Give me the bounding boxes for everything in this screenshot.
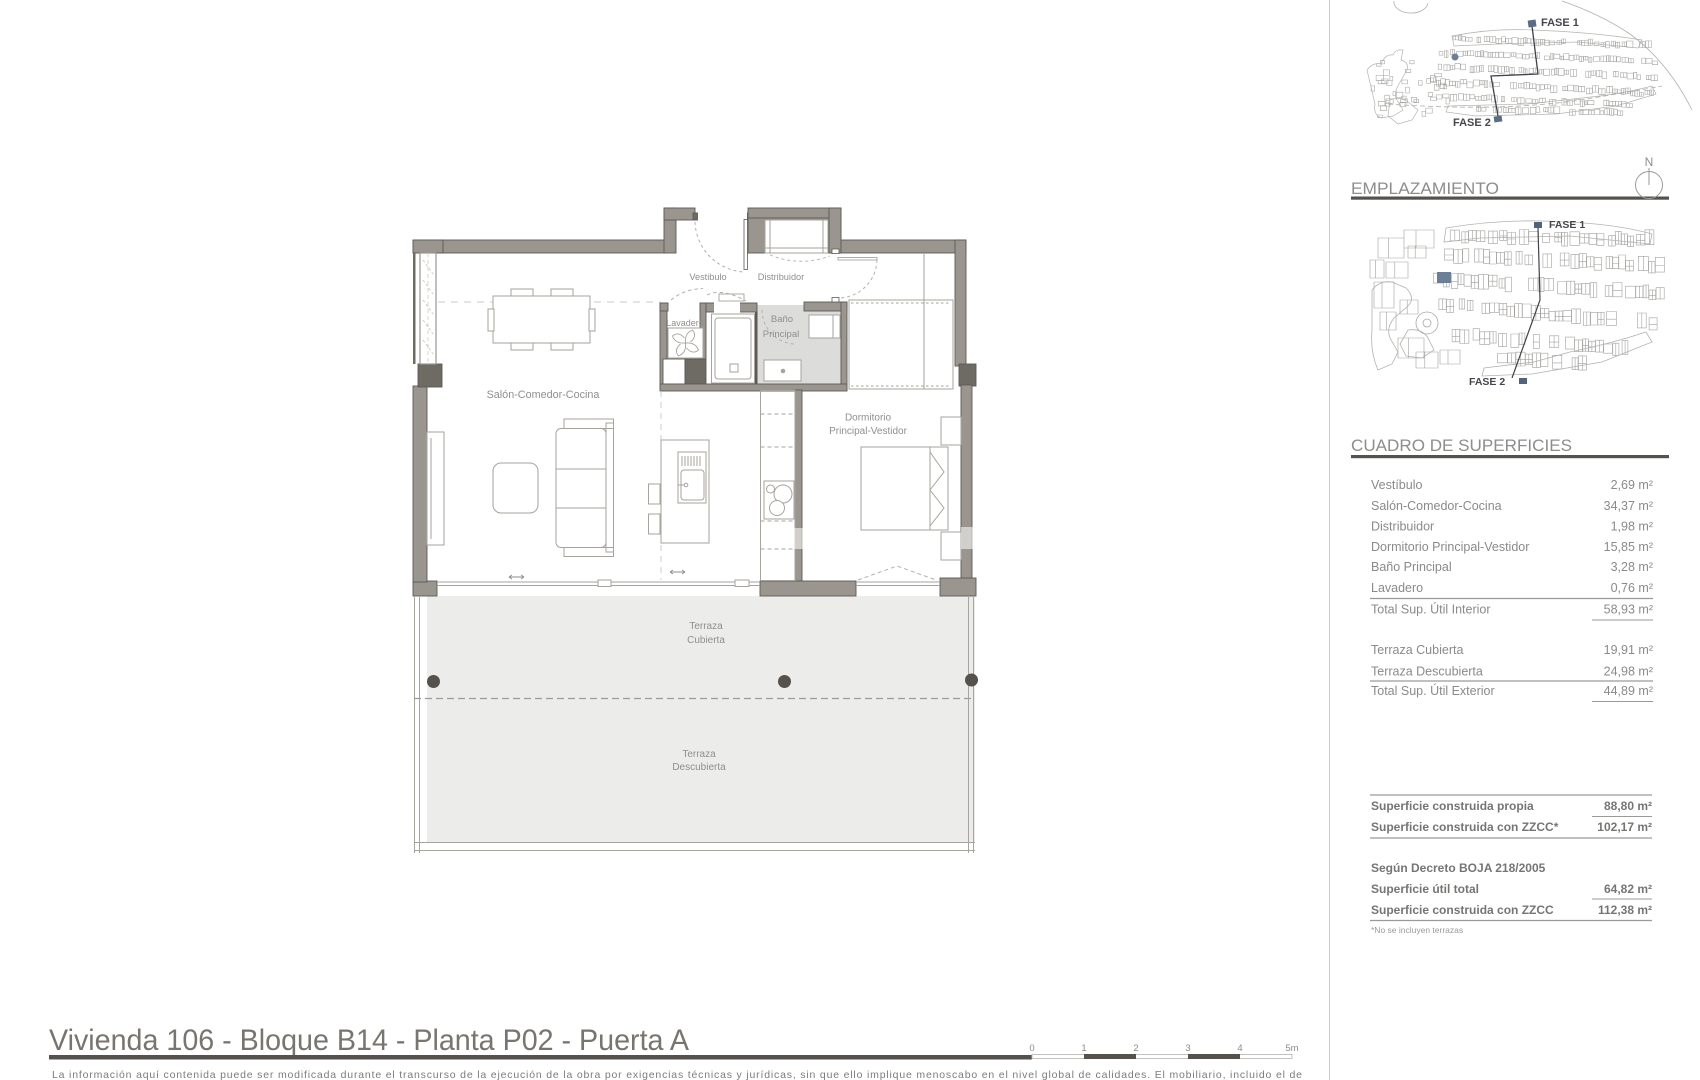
svg-text:FASE 2: FASE 2	[1453, 117, 1491, 129]
svg-text:19,91 m²: 19,91 m²	[1604, 643, 1653, 657]
svg-text:Terraza Cubierta: Terraza Cubierta	[1371, 643, 1463, 657]
svg-text:*No se incluyen terrazas: *No se incluyen terrazas	[1371, 925, 1463, 935]
svg-text:CUADRO DE SUPERFICIES: CUADRO DE SUPERFICIES	[1351, 437, 1572, 455]
svg-text:Terraza: Terraza	[682, 749, 716, 760]
svg-text:Distribuidor: Distribuidor	[1371, 520, 1434, 534]
svg-text:Total Sup. Útil Exterior: Total Sup. Útil Exterior	[1371, 683, 1495, 698]
svg-text:0,76 m²: 0,76 m²	[1611, 581, 1653, 595]
svg-text:Lavadero: Lavadero	[1371, 581, 1423, 595]
svg-text:64,82 m²: 64,82 m²	[1604, 882, 1652, 896]
svg-text:1: 1	[1081, 1043, 1086, 1054]
svg-text:Superficie útil total: Superficie útil total	[1371, 882, 1479, 896]
svg-text:3: 3	[1185, 1043, 1190, 1054]
svg-text:3,28 m²: 3,28 m²	[1611, 560, 1653, 574]
svg-text:44,89 m²: 44,89 m²	[1604, 684, 1653, 698]
svg-text:Superficie construida con ZZCC: Superficie construida con ZZCC*	[1371, 820, 1559, 834]
svg-text:Dormitorio: Dormitorio	[845, 413, 892, 424]
svg-text:Dormitorio Principal-Vestidor: Dormitorio Principal-Vestidor	[1371, 540, 1529, 554]
svg-text:112,38 m²: 112,38 m²	[1598, 903, 1652, 917]
svg-text:58,93 m²: 58,93 m²	[1604, 603, 1653, 617]
svg-text:2,69 m²: 2,69 m²	[1611, 478, 1653, 492]
svg-text:FASE 1: FASE 1	[1541, 17, 1579, 29]
svg-text:EMPLAZAMIENTO: EMPLAZAMIENTO	[1351, 180, 1499, 198]
svg-text:La información aquí contenida: La información aquí contenida puede ser …	[52, 1069, 1302, 1080]
svg-text:N: N	[1645, 155, 1654, 169]
svg-text:Salón-Comedor-Cocina: Salón-Comedor-Cocina	[487, 389, 600, 401]
svg-text:2: 2	[1133, 1043, 1138, 1054]
svg-text:Lavadero: Lavadero	[666, 318, 704, 328]
svg-text:Vestibulo: Vestibulo	[689, 272, 726, 282]
svg-text:Distribuidor: Distribuidor	[758, 272, 804, 282]
svg-text:Principal: Principal	[763, 329, 799, 340]
svg-text:Cubierta: Cubierta	[687, 635, 725, 646]
svg-text:Salón-Comedor-Cocina: Salón-Comedor-Cocina	[1371, 499, 1502, 513]
svg-text:Principal-Vestidor: Principal-Vestidor	[829, 426, 907, 437]
svg-text:1,98 m²: 1,98 m²	[1611, 520, 1653, 534]
svg-text:Total Sup. Útil Interior: Total Sup. Útil Interior	[1371, 602, 1491, 617]
svg-text:Terraza Descubierta: Terraza Descubierta	[1371, 665, 1483, 679]
svg-text:Baño: Baño	[771, 314, 793, 325]
svg-text:Terraza: Terraza	[689, 621, 723, 632]
svg-text:0: 0	[1029, 1043, 1034, 1054]
svg-text:88,80 m²: 88,80 m²	[1604, 799, 1652, 813]
svg-text:4: 4	[1237, 1043, 1242, 1054]
svg-text:Descubierta: Descubierta	[672, 762, 726, 773]
svg-text:Vestíbulo: Vestíbulo	[1371, 478, 1422, 492]
svg-text:34,37 m²: 34,37 m²	[1604, 499, 1653, 513]
svg-text:5m: 5m	[1285, 1043, 1298, 1054]
svg-text:Superficie construida con ZZCC: Superficie construida con ZZCC	[1371, 903, 1554, 917]
svg-text:Según Decreto BOJA 218/2005: Según Decreto BOJA 218/2005	[1371, 861, 1546, 875]
svg-text:FASE 2: FASE 2	[1469, 376, 1505, 388]
svg-text:15,85 m²: 15,85 m²	[1604, 540, 1653, 554]
svg-text:102,17 m²: 102,17 m²	[1597, 820, 1652, 834]
svg-text:24,98 m²: 24,98 m²	[1604, 665, 1653, 679]
svg-text:Vivienda 106 - Bloque B14 - Pl: Vivienda 106 - Bloque B14 - Planta P02 -…	[49, 1024, 689, 1057]
svg-text:Superficie construida propia: Superficie construida propia	[1371, 799, 1534, 813]
svg-text:Baño Principal: Baño Principal	[1371, 560, 1452, 574]
svg-text:FASE 1: FASE 1	[1549, 219, 1585, 231]
